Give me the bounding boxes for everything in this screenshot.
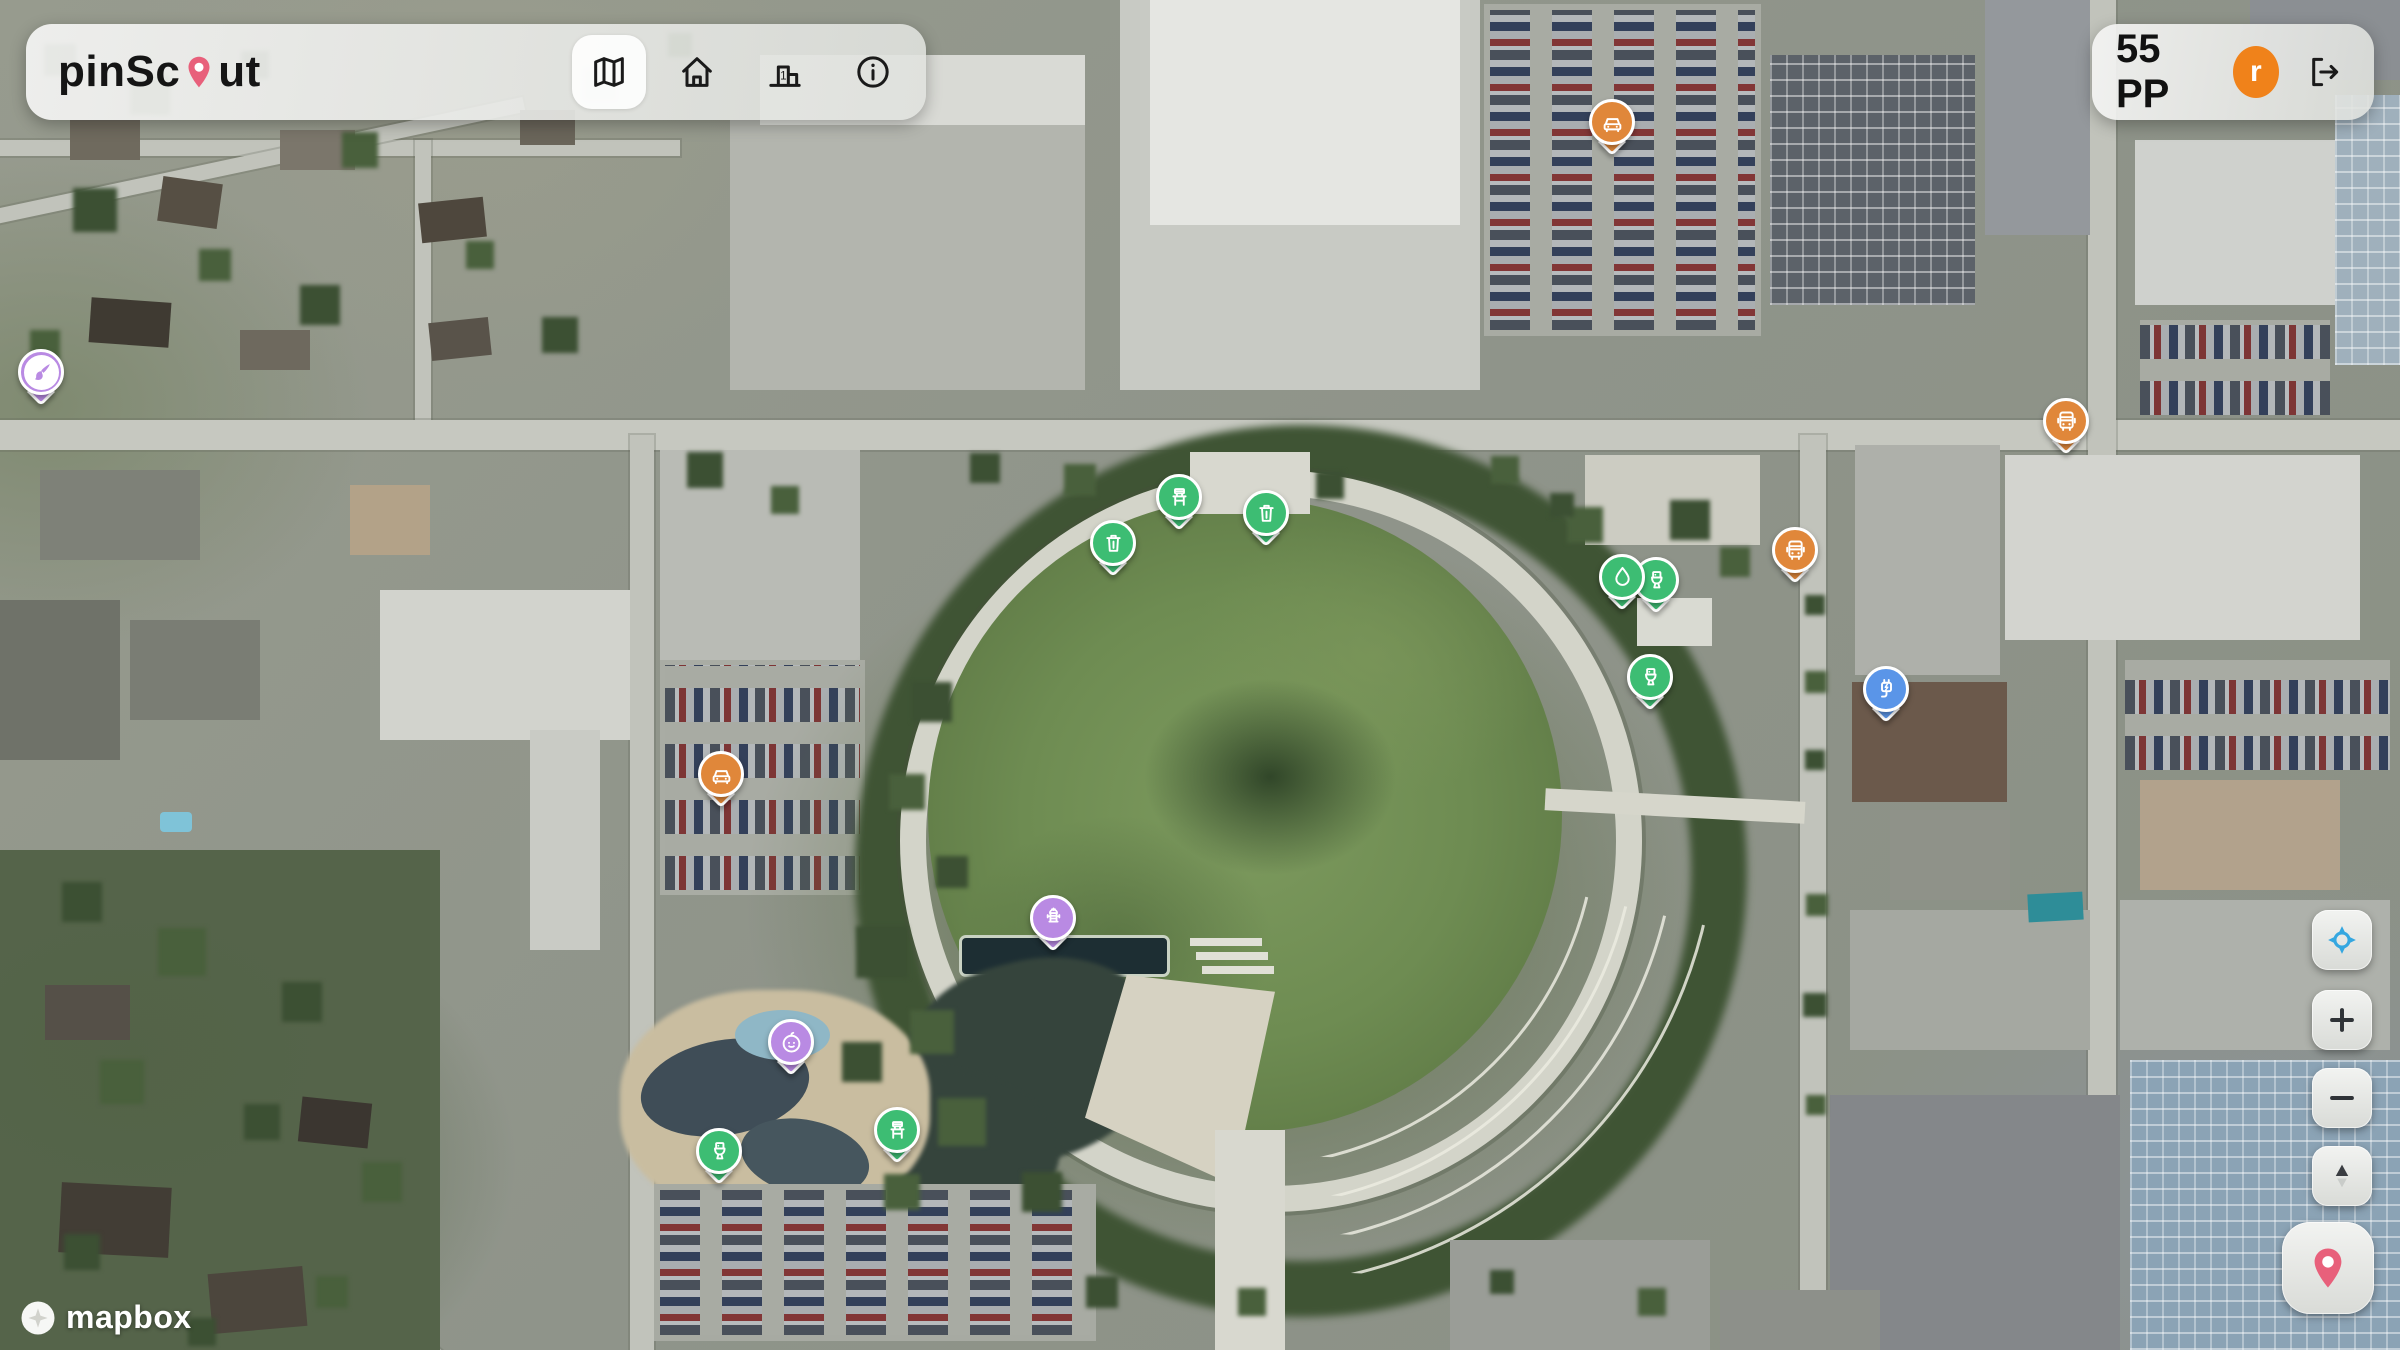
map-canvas[interactable] [0, 0, 2400, 1350]
pin-playground[interactable] [768, 1019, 814, 1065]
pin-trash[interactable] [1243, 490, 1289, 536]
bench-icon [1166, 484, 1193, 511]
pin-trash[interactable] [1090, 520, 1136, 566]
pin-body [874, 1107, 920, 1153]
pin-body [1772, 527, 1818, 573]
map-icon [589, 52, 629, 92]
mapbox-logo-icon [20, 1300, 56, 1336]
pin-parking[interactable] [1589, 99, 1635, 145]
nav-info[interactable] [836, 35, 910, 109]
geolocate-icon [2325, 923, 2359, 957]
pin-body [1627, 654, 1673, 700]
compass-icon [2325, 1159, 2359, 1193]
pin-bus-stop[interactable] [2043, 398, 2089, 444]
logo-pin-icon [181, 50, 217, 94]
pin-water-fountain[interactable] [1599, 554, 1645, 600]
baby-icon [778, 1029, 805, 1056]
pin-art[interactable] [18, 349, 64, 395]
app-logo[interactable]: pinSc ut [58, 47, 261, 97]
add-pin-button[interactable] [2282, 1222, 2374, 1314]
svg-text:1: 1 [780, 70, 786, 83]
pin-body [1863, 666, 1909, 712]
car-icon [708, 761, 735, 788]
nav-leaderboard[interactable]: 1 [748, 35, 822, 109]
pin-body [1030, 895, 1076, 941]
logo-text-pre: pinSc [58, 47, 180, 97]
ev-icon [1873, 676, 1900, 703]
top-navbar: pinSc ut 1 [26, 24, 926, 120]
nav-home[interactable] [660, 35, 734, 109]
pin-body [698, 751, 744, 797]
pin-body [18, 349, 64, 395]
car-icon [1599, 109, 1626, 136]
logout-button[interactable] [2299, 44, 2350, 100]
nav-map[interactable] [572, 35, 646, 109]
minus-icon [2325, 1081, 2359, 1115]
nav-buttons: 1 [572, 35, 910, 109]
attribution[interactable]: mapbox [20, 1299, 192, 1336]
pin-body [1243, 490, 1289, 536]
zoom-out-button[interactable] [2312, 1068, 2372, 1128]
logo-text-post: ut [218, 47, 261, 97]
geolocate-button[interactable] [2312, 910, 2372, 970]
pin-ev-charger[interactable] [1863, 666, 1909, 712]
bus-icon [1782, 537, 1809, 564]
avatar[interactable]: r [2233, 46, 2279, 98]
pin-body [1599, 554, 1645, 600]
bench-icon [884, 1117, 911, 1144]
pin-body [1090, 520, 1136, 566]
pin-restroom[interactable] [1627, 654, 1673, 700]
logout-icon [2305, 53, 2343, 91]
info-icon [853, 52, 893, 92]
leaderboard-icon: 1 [765, 52, 805, 92]
trash-icon [1100, 530, 1127, 557]
toilet-icon [1643, 567, 1670, 594]
pin-bench[interactable] [874, 1107, 920, 1153]
mapbox-wordmark: mapbox [66, 1299, 192, 1336]
compass-button[interactable] [2312, 1146, 2372, 1206]
pin-bus-stop[interactable] [1772, 527, 1818, 573]
toilet-icon [1637, 664, 1664, 691]
pin-fountain[interactable] [1030, 895, 1076, 941]
pin-body [2043, 398, 2089, 444]
home-icon [677, 52, 717, 92]
user-bar: 55 PP r [2092, 24, 2374, 120]
pin-bench[interactable] [1156, 474, 1202, 520]
pins-layer [0, 0, 2400, 1350]
toilet-icon [706, 1138, 733, 1165]
pin-body [696, 1128, 742, 1174]
paintbrush-icon [28, 359, 55, 386]
fountain-icon [1040, 905, 1067, 932]
pin-body [1589, 99, 1635, 145]
water-icon [1609, 564, 1636, 591]
bus-icon [2053, 408, 2080, 435]
pin-body [1156, 474, 1202, 520]
pin-icon [2305, 1245, 2351, 1291]
plus-icon [2325, 1003, 2359, 1037]
pin-restroom[interactable] [696, 1128, 742, 1174]
trash-icon [1253, 500, 1280, 527]
zoom-in-button[interactable] [2312, 990, 2372, 1050]
pin-parking[interactable] [698, 751, 744, 797]
points-balance: 55 PP [2116, 27, 2213, 117]
pin-body [768, 1019, 814, 1065]
